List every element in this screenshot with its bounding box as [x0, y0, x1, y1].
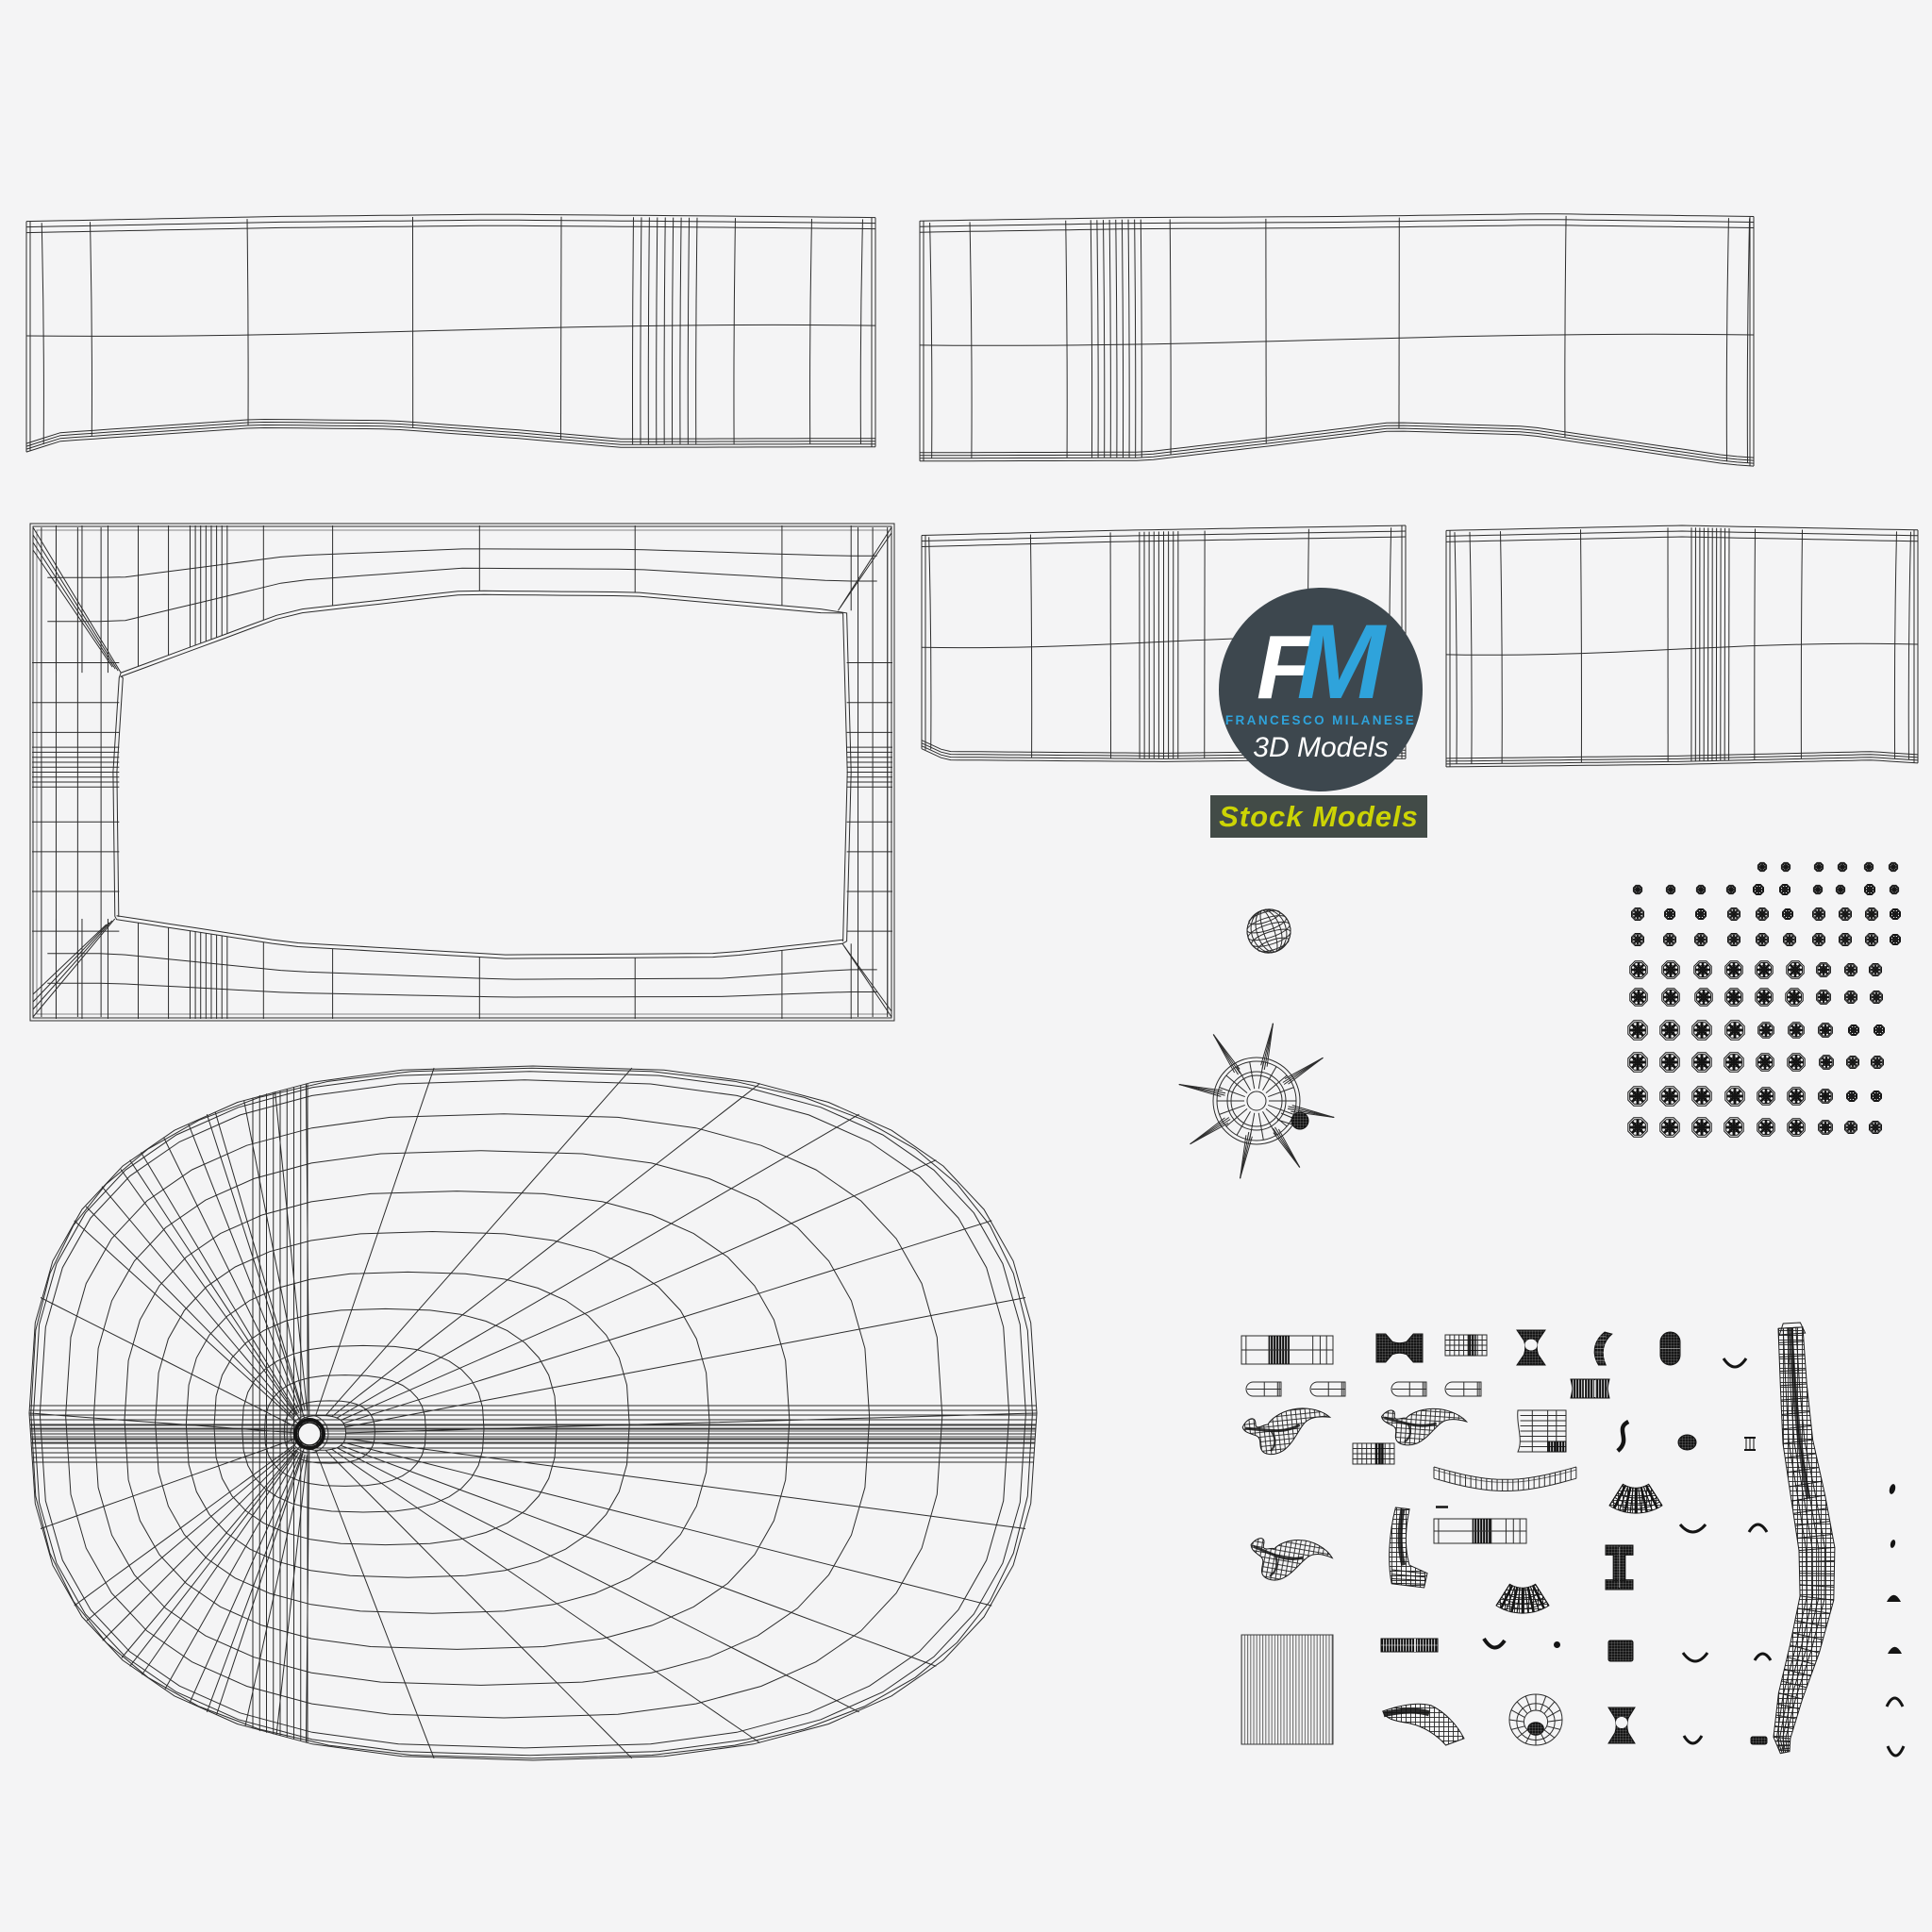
uv-part-speck: [1890, 1540, 1896, 1549]
stock-models-banner: Stock Models: [1210, 795, 1427, 838]
uv-part-grid_rect: [1353, 1443, 1394, 1464]
uv-part-arc: [1888, 1746, 1904, 1756]
uv-part-bowtie_hole: [1608, 1707, 1635, 1743]
uv-part-arc: [1887, 1698, 1903, 1707]
uv-part-grid_rect: [1445, 1335, 1487, 1356]
uv-part-spool_i: [1606, 1545, 1633, 1590]
uv-part-capsule: [1391, 1382, 1426, 1396]
uv-part-arc: [1680, 1524, 1706, 1532]
uv-part-dot: [1554, 1641, 1560, 1648]
uv-part-y_wing: [1380, 1405, 1468, 1449]
uv-sphere-knob: [1241, 904, 1296, 958]
uv-part-long_strip: [1774, 1323, 1835, 1754]
brand-author-name: FRANCESCO MILANESE: [1225, 713, 1416, 727]
uv-part-rib_arc_v: [1594, 1332, 1612, 1365]
uv-shell-bottom: [20, 1057, 1046, 1770]
uv-part-wedge: [1888, 1647, 1902, 1654]
stock-models-label: Stock Models: [1219, 800, 1419, 834]
uv-part-speck: [1889, 1483, 1897, 1494]
uv-part-spool_h: [1376, 1334, 1423, 1362]
wireframe-canvas: [0, 0, 1932, 1932]
uv-part-elbow: [1383, 1704, 1464, 1745]
uv-part-rib_panel: [1518, 1410, 1566, 1452]
uv-side-panel-top-right: [920, 214, 1754, 466]
uv-part-dark_capsule: [1660, 1332, 1680, 1365]
uv-part-dark_square: [1751, 1737, 1767, 1744]
uv-part-arc: [1684, 1736, 1702, 1743]
uv-part-wedge: [1887, 1595, 1901, 1602]
brand-letter-m: M: [1297, 603, 1385, 721]
uv-part-arc: [1755, 1654, 1771, 1660]
brand-logo: FM FRANCESCO MILANESE 3D Models: [1219, 588, 1423, 791]
uv-side-panel-mid-right: [1446, 525, 1918, 767]
uv-part-arc: [1683, 1653, 1707, 1661]
uv-part-strip_band: [1381, 1639, 1438, 1652]
brand-tagline: 3D Models: [1253, 732, 1388, 764]
uv-part-dark_square: [1608, 1641, 1633, 1661]
uv-part-capsule: [1246, 1382, 1281, 1396]
uv-part-mesh_ellipse: [1509, 1694, 1562, 1745]
uv-rim-frame: [30, 524, 894, 1021]
uv-part-fan: [1496, 1584, 1549, 1613]
uv-part-band_rect: [1241, 1336, 1333, 1364]
uv-part-tiny_curve: [1484, 1639, 1505, 1648]
uv-part-arc: [1724, 1358, 1746, 1367]
uv-part-hatch_rect: [1241, 1635, 1333, 1744]
uv-part-small_s: [1618, 1422, 1628, 1451]
uv-nozzle-grid: [1628, 862, 1901, 1137]
uv-part-y_wing: [1245, 1531, 1334, 1590]
uv-part-arc: [1749, 1524, 1767, 1532]
uv-part-dark_barrel: [1571, 1379, 1609, 1398]
uv-starburst-jet: [1179, 1024, 1334, 1178]
uv-part-blade: [1390, 1507, 1427, 1588]
uv-part-fan: [1609, 1484, 1662, 1513]
uv-part-dark_ellipse: [1678, 1435, 1696, 1450]
uv-template-sheet: FM FRANCESCO MILANESE 3D Models Stock Mo…: [0, 0, 1932, 1932]
uv-part-y_wing: [1241, 1406, 1333, 1457]
uv-part-bowtie_hole: [1517, 1330, 1545, 1365]
uv-part-capsule: [1445, 1382, 1481, 1396]
uv-small-parts: [1241, 1323, 1904, 1756]
uv-part-arc_band: [1434, 1467, 1576, 1491]
uv-part-capsule: [1310, 1382, 1345, 1396]
uv-part-band_rect: [1434, 1519, 1526, 1543]
uv-part-tiny_ibeam: [1744, 1438, 1756, 1450]
uv-side-panel-top-left: [26, 214, 875, 452]
brand-monogram: FM: [1257, 615, 1385, 710]
